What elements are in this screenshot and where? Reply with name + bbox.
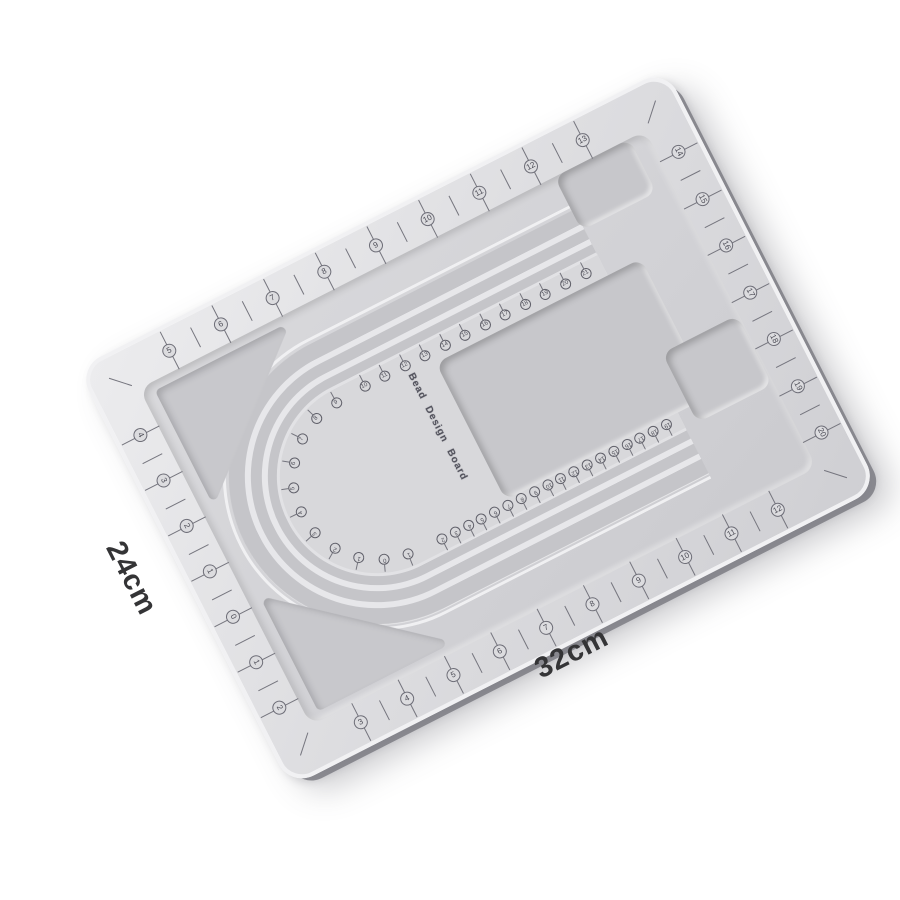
product-photo-scene: Bead Design Board 5678910111213345678910…: [0, 0, 900, 900]
dimension-label-height: 24cm: [96, 531, 166, 626]
bead-design-board: Bead Design Board 5678910111213345678910…: [77, 69, 878, 787]
